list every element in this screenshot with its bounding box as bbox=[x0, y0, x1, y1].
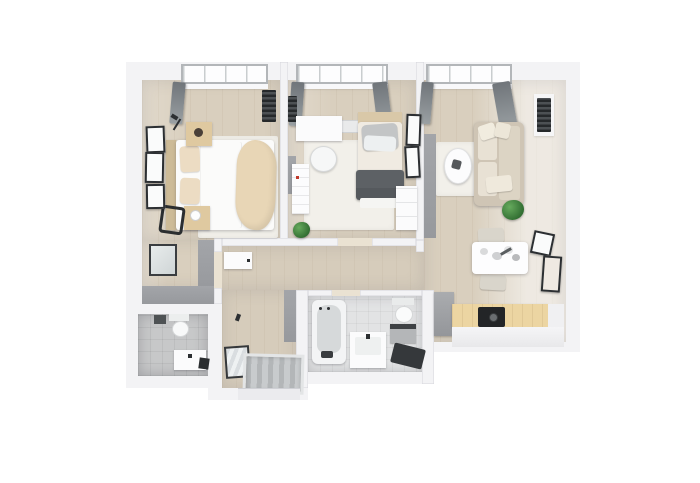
bathtub-basin bbox=[317, 305, 341, 353]
bedroom-window-sill bbox=[181, 84, 268, 89]
table-setting bbox=[480, 248, 488, 255]
office-door-threshold bbox=[338, 238, 372, 246]
office-desk[interactable] bbox=[296, 116, 342, 141]
table-setting bbox=[512, 254, 520, 261]
front-door[interactable] bbox=[238, 388, 300, 400]
wall-hall-north-a bbox=[222, 238, 338, 246]
window-panes bbox=[298, 66, 386, 82]
wc-toilet-tank bbox=[169, 314, 189, 321]
wall-bath-north-b bbox=[360, 290, 422, 296]
bookshelf-accent bbox=[296, 176, 299, 179]
bathtub-faucet bbox=[321, 351, 333, 358]
bath-door-threshold bbox=[332, 290, 360, 296]
sofa-pillow bbox=[485, 175, 513, 194]
sink-basin bbox=[355, 337, 381, 355]
dining-chair[interactable] bbox=[480, 274, 507, 290]
bathroom-toilet[interactable] bbox=[395, 306, 413, 323]
kitchen-cabinet-tall[interactable] bbox=[434, 292, 454, 336]
wall-bedroom-office bbox=[280, 62, 288, 240]
cooktop-burner bbox=[489, 313, 498, 322]
wc-dark-corner bbox=[198, 357, 209, 369]
alcove-mirror[interactable] bbox=[149, 244, 177, 276]
wall-living-stub bbox=[416, 240, 424, 252]
nightstand-lamp bbox=[190, 210, 201, 221]
kitchen-counter-right bbox=[548, 304, 564, 327]
bedroom-radiator bbox=[262, 90, 276, 122]
living-window bbox=[426, 64, 512, 84]
sink-tap bbox=[366, 334, 370, 339]
bed-pillow bbox=[180, 178, 201, 205]
office-window bbox=[296, 64, 388, 84]
cabinet-handle bbox=[247, 259, 250, 262]
wall-alcove-b bbox=[214, 288, 222, 304]
bedroom-chair[interactable] bbox=[158, 204, 186, 235]
office-wall-art[interactable] bbox=[404, 146, 421, 179]
window-panes bbox=[183, 66, 266, 82]
nightstand-item bbox=[194, 128, 203, 137]
daybed-pillow-white bbox=[364, 135, 397, 152]
kitchen-counter-front bbox=[452, 327, 564, 347]
bedroom-wall-art[interactable] bbox=[146, 126, 166, 154]
toilet-tank bbox=[392, 298, 414, 305]
bed-pillow bbox=[179, 145, 200, 172]
bedroom-wall-art[interactable] bbox=[146, 184, 165, 209]
wall-face-alcove bbox=[198, 240, 214, 290]
office-dresser[interactable] bbox=[396, 186, 417, 230]
shower-control bbox=[327, 307, 330, 310]
office-wall-art[interactable] bbox=[405, 114, 421, 147]
apartment-floorplan bbox=[0, 0, 700, 483]
office-bookshelf[interactable] bbox=[292, 164, 309, 214]
wall-alcove-a bbox=[214, 238, 222, 252]
wall-face-alcove-south bbox=[142, 286, 214, 304]
bedroom-wall-art[interactable] bbox=[145, 152, 165, 183]
wall-hall-north-b bbox=[372, 238, 416, 246]
sofa-pillow bbox=[494, 122, 512, 140]
living-radiator bbox=[537, 98, 551, 132]
wc-toilet[interactable] bbox=[172, 321, 189, 337]
office-desk-chair[interactable] bbox=[310, 146, 337, 172]
wall-bath-kitchen bbox=[422, 290, 434, 384]
floorplan-canvas bbox=[0, 0, 700, 483]
shower-control bbox=[319, 307, 322, 310]
wall-face-living bbox=[424, 134, 436, 238]
bed-blanket bbox=[234, 139, 277, 230]
wall-face-entry bbox=[284, 290, 296, 342]
wc-sink-tap bbox=[188, 354, 192, 358]
bedroom-window bbox=[181, 64, 268, 84]
ottoman-throw bbox=[360, 198, 398, 208]
window-panes bbox=[428, 66, 510, 82]
washer-top bbox=[390, 324, 416, 329]
dining-wall-art[interactable] bbox=[541, 255, 562, 292]
wc-wall-cabinet[interactable] bbox=[154, 315, 166, 324]
wall-bath-north-a bbox=[308, 290, 332, 296]
bedroom-door-threshold bbox=[214, 252, 222, 288]
